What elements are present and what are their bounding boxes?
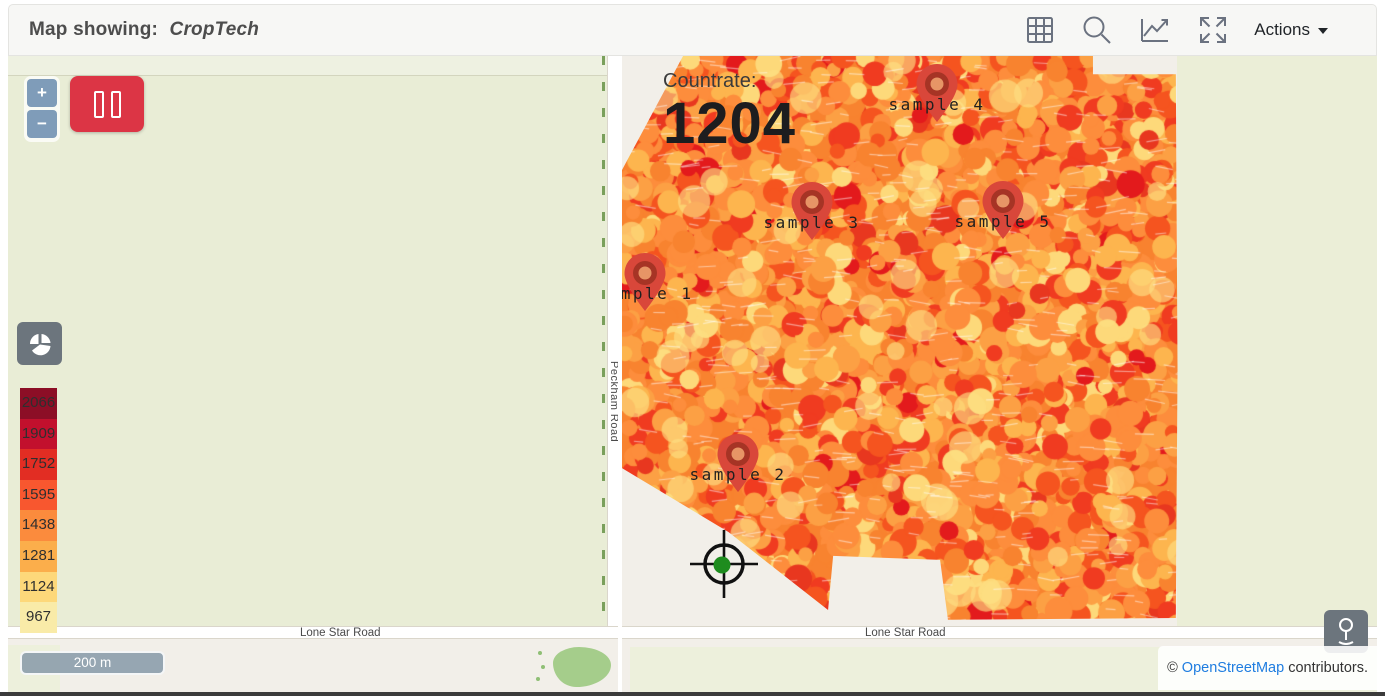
actions-label: Actions xyxy=(1254,20,1310,40)
road-lone-star-label-left: Lone Star Road xyxy=(300,627,381,639)
sample-marker-label: sample 2 xyxy=(689,465,786,484)
pie-chart-button[interactable] xyxy=(17,322,62,365)
zoom-control: + − xyxy=(24,76,60,142)
sample-marker-label: sample 4 xyxy=(888,95,985,114)
attribution-copyright: © xyxy=(1167,660,1182,676)
legend-entry: 1281 xyxy=(20,541,57,572)
attribution-suffix: contributors. xyxy=(1284,660,1368,676)
tree-dot xyxy=(541,665,545,669)
grid-icon[interactable] xyxy=(1024,14,1056,46)
legend-entry: 1752 xyxy=(20,449,57,480)
toolbar-actions: Actions xyxy=(1024,13,1328,47)
legend-entry: 1438 xyxy=(20,510,57,541)
tree-dot xyxy=(536,677,540,681)
field-parcel xyxy=(1177,56,1377,626)
wooded-area xyxy=(553,647,611,687)
trail-markings xyxy=(602,56,605,632)
sample-marker-pin[interactable] xyxy=(915,63,959,123)
pause-icon xyxy=(94,91,104,118)
legend-entry: 1124 xyxy=(20,572,57,603)
page-title-prefix: Map showing: xyxy=(29,19,158,40)
chevron-down-icon xyxy=(1318,28,1328,34)
map-attribution: © OpenStreetMap contributors. xyxy=(1158,646,1377,690)
road-lone-star-right xyxy=(622,626,1377,639)
legend-entry: 967 xyxy=(20,602,57,633)
scale-bar: 200 m xyxy=(20,651,165,675)
road-peckham-label: Peckham Road xyxy=(607,332,618,472)
app-window: Map showing: CropTech Actions xyxy=(0,0,1385,698)
search-icon[interactable] xyxy=(1080,13,1114,47)
zoom-out-button[interactable]: − xyxy=(27,110,57,138)
tree-dot xyxy=(538,651,542,655)
map-panel-right[interactable]: Countrate: 1204 sample 1sample 2sample 3… xyxy=(622,56,1377,692)
field-parcel xyxy=(8,56,618,76)
sample-marker-label: sample 3 xyxy=(763,213,860,232)
zoom-in-button[interactable]: + xyxy=(27,79,57,107)
countrate-readout: Countrate: 1204 xyxy=(663,70,796,153)
pie-chart-icon xyxy=(27,331,53,357)
actions-dropdown[interactable]: Actions xyxy=(1254,20,1328,40)
page-title: Map showing: CropTech xyxy=(29,19,259,41)
sample-marker-label: sample 5 xyxy=(954,212,1051,231)
sample-marker-pin[interactable] xyxy=(716,433,760,493)
legend-entry: 1595 xyxy=(20,480,57,511)
sample-marker-pin[interactable] xyxy=(790,181,834,241)
window-bottom-edge xyxy=(0,692,1385,696)
pause-button[interactable] xyxy=(70,76,144,132)
countrate-legend: 2066190917521595143812811124967 xyxy=(20,388,57,633)
countrate-value: 1204 xyxy=(663,95,796,153)
line-chart-icon[interactable] xyxy=(1138,14,1172,46)
road-lone-star-label-right: Lone Star Road xyxy=(865,627,946,639)
legend-entry: 1909 xyxy=(20,419,57,450)
map-panel-left[interactable]: Peckham Road Lone Star Road + − xyxy=(8,56,618,692)
pause-icon xyxy=(111,91,121,118)
legend-entry: 2066 xyxy=(20,388,57,419)
map-pin-icon xyxy=(1333,617,1359,647)
openstreetmap-link[interactable]: OpenStreetMap xyxy=(1182,660,1284,676)
map-area: Peckham Road Lone Star Road + − xyxy=(8,56,1377,692)
sample-marker-pin[interactable] xyxy=(623,252,667,312)
map-name: CropTech xyxy=(170,19,260,40)
position-crosshair-icon xyxy=(686,526,762,602)
countrate-label: Countrate: xyxy=(663,70,796,93)
sample-marker-pin[interactable] xyxy=(981,180,1025,240)
toolbar: Map showing: CropTech Actions xyxy=(8,4,1377,56)
sample-marker-label: sample 1 xyxy=(622,284,694,303)
fullscreen-icon[interactable] xyxy=(1196,13,1230,47)
